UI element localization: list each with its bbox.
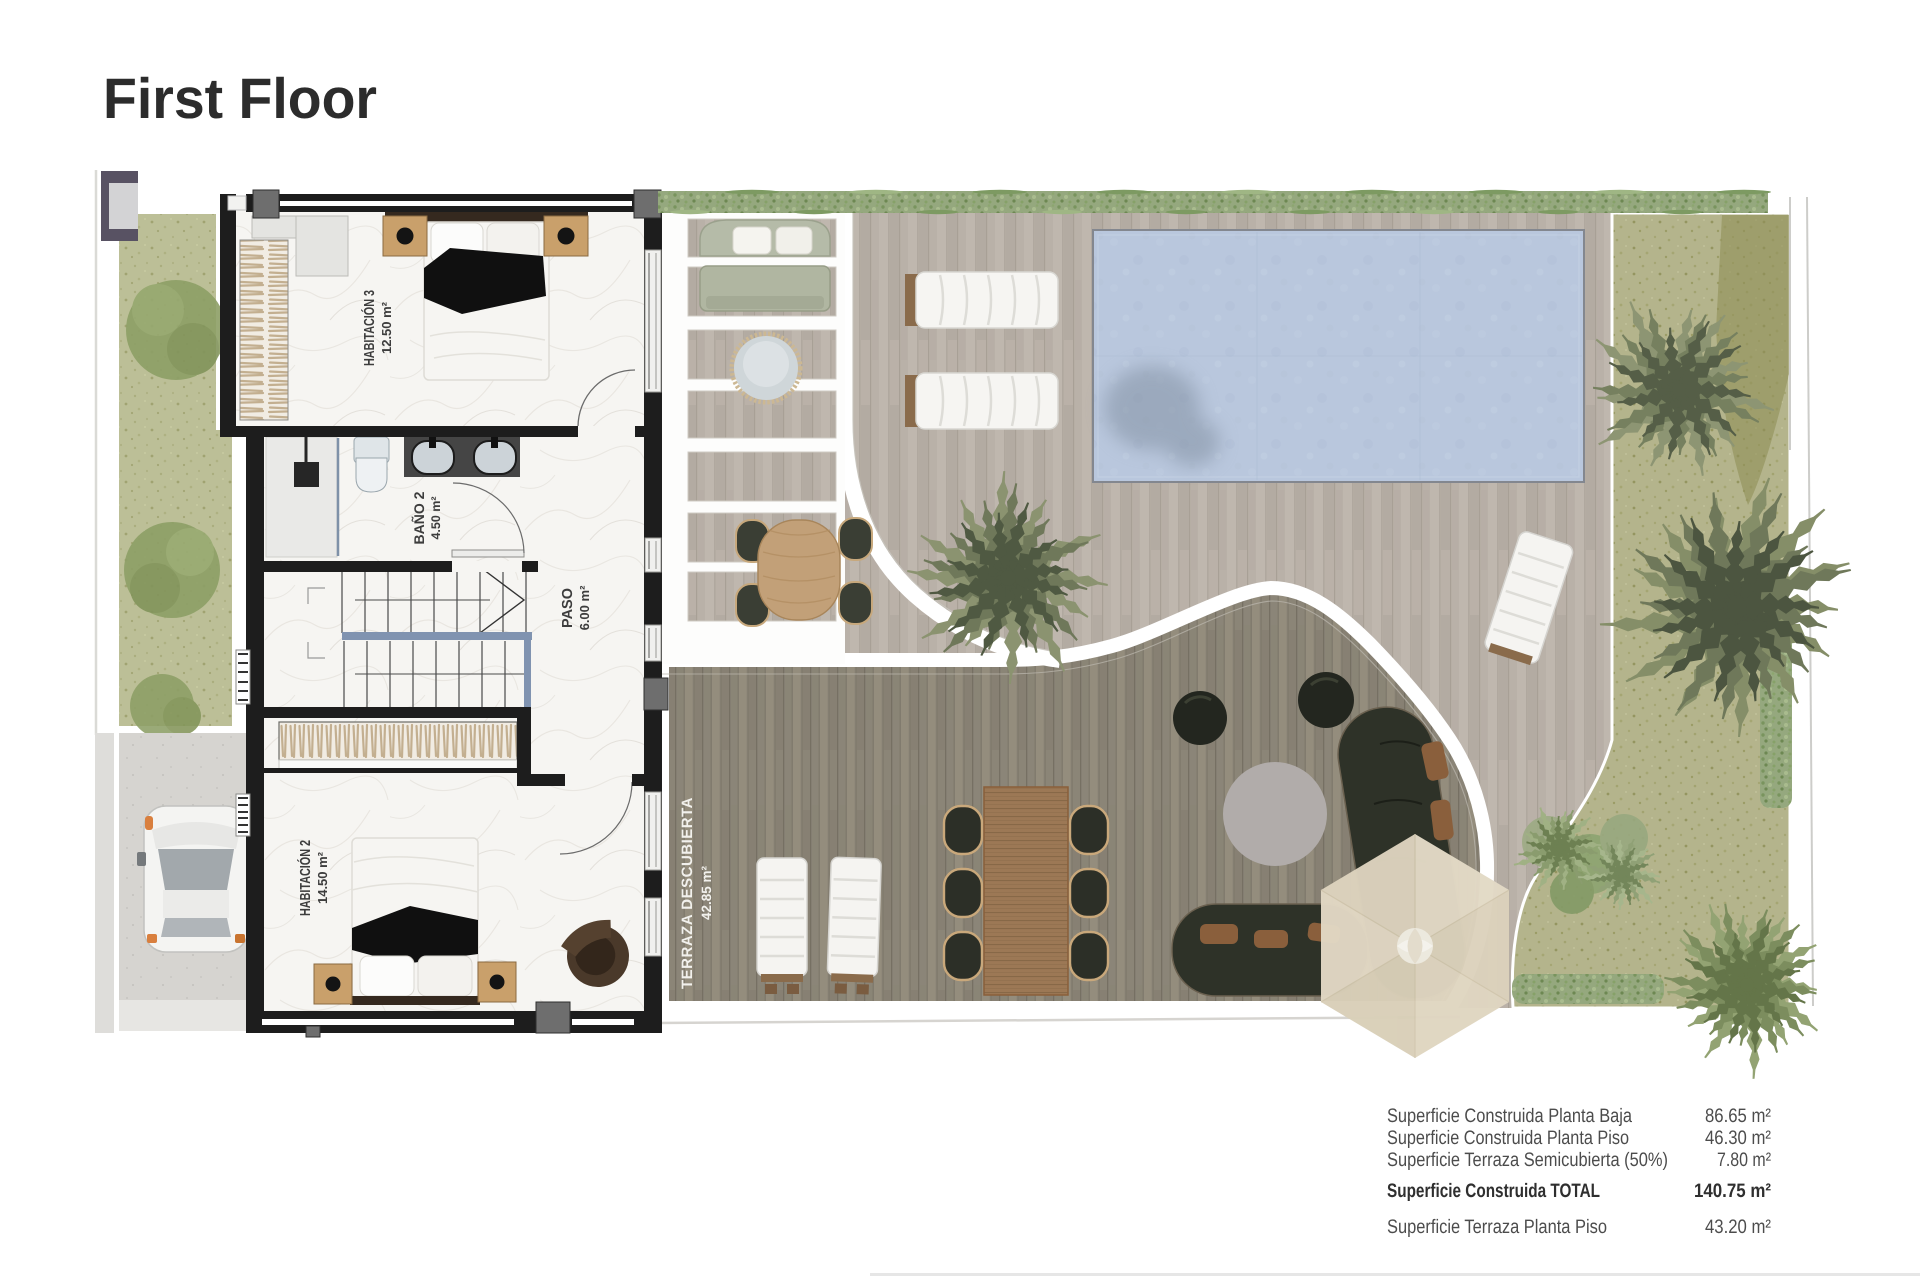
svg-text:Superficie Terraza Planta Piso: Superficie Terraza Planta Piso: [1387, 1216, 1607, 1238]
svg-text:46.30 m²: 46.30 m²: [1705, 1127, 1771, 1149]
svg-text:43.20 m²: 43.20 m²: [1705, 1216, 1771, 1238]
svg-text:PASO: PASO: [560, 588, 576, 628]
svg-text:Superficie Construida Planta B: Superficie Construida Planta Baja: [1387, 1105, 1632, 1127]
svg-text:140.75 m²: 140.75 m²: [1694, 1180, 1771, 1202]
svg-text:4.50 m²: 4.50 m²: [429, 496, 443, 539]
svg-text:14.50 m²: 14.50 m²: [315, 851, 330, 904]
svg-text:TERRAZA DESCUBIERTA: TERRAZA DESCUBIERTA: [679, 797, 696, 989]
svg-text:42.85 m²: 42.85 m²: [699, 865, 714, 920]
svg-text:First Floor: First Floor: [103, 67, 377, 131]
svg-text:HABITACIÓN 2: HABITACIÓN 2: [297, 840, 314, 916]
svg-text:6.00 m²: 6.00 m²: [577, 585, 592, 630]
svg-text:HABITACIÓN 3: HABITACIÓN 3: [361, 290, 378, 366]
svg-text:BAÑO 2: BAÑO 2: [411, 491, 427, 544]
svg-text:7.80 m²: 7.80 m²: [1717, 1149, 1771, 1171]
svg-text:Superficie Construida Planta P: Superficie Construida Planta Piso: [1387, 1127, 1629, 1149]
svg-text:Superficie Construida TOTAL: Superficie Construida TOTAL: [1387, 1180, 1600, 1202]
svg-text:12.50 m²: 12.50 m²: [379, 301, 394, 354]
svg-text:Superficie Terraza Semicubiert: Superficie Terraza Semicubierta (50%): [1387, 1149, 1668, 1171]
svg-text:86.65 m²: 86.65 m²: [1705, 1105, 1771, 1127]
